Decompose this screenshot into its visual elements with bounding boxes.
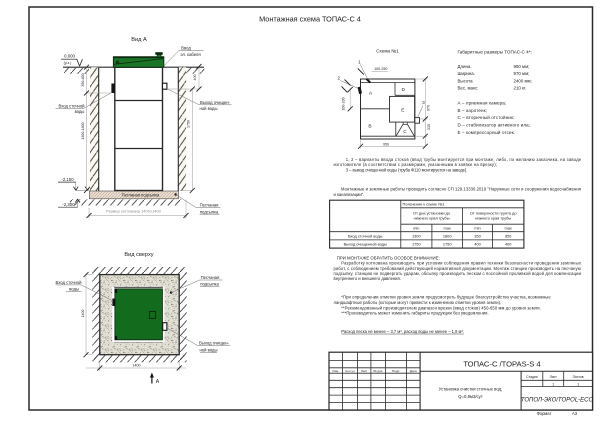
- svg-text:-2,300: -2,300: [62, 202, 75, 207]
- svg-text:Изм.: Изм.: [332, 369, 339, 373]
- svg-text:***Производитель может изменит: ***Производитель может изменить габариты…: [341, 311, 488, 316]
- svg-text:Лист: Лист: [550, 375, 558, 379]
- svg-text:970 мм;: 970 мм;: [514, 71, 530, 76]
- svg-text:210 кг.: 210 кг.: [514, 86, 527, 91]
- svg-text:нижнего края трубы: нижнего края трубы: [414, 216, 450, 221]
- svg-text:Монтажная схема ТОПАС-С 4: Монтажная схема ТОПАС-С 4: [259, 15, 361, 24]
- svg-text:Лист: Лист: [361, 369, 368, 373]
- svg-text:950: 950: [383, 142, 389, 146]
- svg-text:400: 400: [474, 242, 481, 247]
- svg-text:Размер котлована 1400х1400: Размер котлована 1400х1400: [106, 208, 162, 213]
- svg-text:В – аэротенк;: В – аэротенк;: [458, 108, 488, 113]
- svg-text:ной воды: ной воды: [199, 106, 217, 111]
- svg-text:1750: 1750: [443, 242, 452, 247]
- svg-text:1750: 1750: [187, 120, 191, 128]
- svg-text:Вид сверху: Вид сверху: [124, 252, 153, 258]
- svg-text:ТОПАС-С /TOPAS-S 4: ТОПАС-С /TOPAS-S 4: [463, 359, 540, 368]
- svg-text:Е – компрессорный отсек.: Е – компрессорный отсек.: [458, 129, 516, 135]
- svg-text:эл. кабеля: эл. кабеля: [180, 52, 200, 57]
- svg-text:D: D: [401, 87, 405, 93]
- svg-text:1300: 1300: [412, 233, 421, 238]
- svg-text:min: min: [474, 226, 480, 231]
- svg-text:-2,150: -2,150: [61, 177, 74, 182]
- svg-text:0,000: 0,000: [64, 54, 75, 59]
- svg-text:Выход очищен-: Выход очищен-: [200, 100, 230, 105]
- svg-text:950 мм;: 950 мм;: [514, 64, 530, 69]
- svg-text:подсыпка: подсыпка: [200, 281, 219, 286]
- svg-text:и канализации".: и канализации".: [334, 192, 365, 197]
- svg-text:Установка очистки сточных вод,: Установка очистки сточных вод,: [439, 386, 503, 391]
- svg-text:нижнего края трубы: нижнего края трубы: [475, 216, 511, 221]
- svg-text:Формат: Формат: [537, 411, 552, 416]
- svg-text:С: С: [403, 129, 406, 134]
- svg-text:А3: А3: [572, 411, 578, 416]
- svg-text:1750: 1750: [412, 242, 421, 247]
- svg-text:100-250: 100-250: [374, 67, 387, 71]
- svg-text:100-200: 100-200: [342, 97, 346, 110]
- svg-text:Дата: Дата: [410, 369, 417, 373]
- svg-text:Вид А: Вид А: [131, 37, 147, 43]
- svg-text:Выход очищенной воды: Выход очищенной воды: [344, 242, 387, 247]
- svg-text:Выход очищен-: Выход очищен-: [199, 341, 229, 346]
- svg-text:воды: воды: [69, 286, 79, 291]
- svg-text:Q=0,8м3/сут: Q=0,8м3/сут: [458, 394, 483, 399]
- svg-text:Подп.: Подп.: [392, 369, 400, 373]
- svg-text:внутреннего и внешнего давлени: внутреннего и внешнего давления.: [334, 276, 401, 281]
- svg-text:Песчаная: Песчаная: [201, 275, 220, 280]
- svg-text:350-850: 350-850: [81, 73, 85, 86]
- svg-text:Монтажные и земляные работы пр: Монтажные и земляные работы проводить со…: [341, 187, 581, 192]
- svg-text:Вход сточной воды: Вход сточной воды: [348, 233, 383, 238]
- svg-text:1: 1: [552, 382, 554, 386]
- svg-text:Пояснение к схеме №1: Пояснение к схеме №1: [403, 202, 445, 207]
- svg-text:1, 2 – варианты ввода стоков: 1, 2 – варианты ввода стоков (ввод трубы…: [346, 157, 582, 162]
- svg-text:1: 1: [577, 382, 579, 386]
- svg-text:max: max: [444, 226, 451, 231]
- svg-text:В: В: [368, 124, 371, 130]
- svg-text:Листов: Листов: [573, 375, 584, 379]
- svg-text:max: max: [505, 226, 512, 231]
- svg-text:А: А: [156, 379, 160, 385]
- svg-text:(у.з.): (у.з.): [64, 61, 72, 65]
- svg-text:С – вторичный отстойник;: С – вторичный отстойник;: [458, 114, 515, 120]
- svg-text:Вход сточной: Вход сточной: [59, 104, 86, 109]
- svg-text:Вход сточной: Вход сточной: [56, 280, 83, 285]
- svg-text:подсыпка: подсыпка: [200, 209, 219, 214]
- svg-text:№ док.: № док.: [373, 369, 383, 373]
- svg-text:Габаритные размеры ТОПАС-С 4*:: Габаритные размеры ТОПАС-С 4*:: [458, 50, 532, 55]
- svg-text:Расход песка не менее – 3,7 м³: Расход песка не менее – 3,7 м³, расход в…: [341, 329, 464, 334]
- svg-text:изготовителе (в соответствии с: изготовителе (в соответствии с размерами…: [334, 162, 498, 167]
- svg-text:Песчаная подсыпка: Песчаная подсыпка: [122, 192, 160, 197]
- svg-text:ТОПОЛ-ЭКО/TOPOL-ECO: ТОПОЛ-ЭКО/TOPOL-ECO: [521, 397, 594, 403]
- svg-text:1400: 1400: [133, 364, 141, 368]
- svg-text:А – приемная камера;: А – приемная камера;: [458, 101, 507, 106]
- svg-text:2400 мм;: 2400 мм;: [514, 78, 532, 83]
- svg-text:3 – вывод очищенной воды (труб: 3 – вывод очищенной воды (труба Ф110 мон…: [346, 167, 468, 172]
- svg-text:воды: воды: [75, 109, 85, 114]
- svg-text:Высота: Высота: [458, 78, 474, 83]
- svg-text:Песчаная: Песчаная: [200, 203, 219, 208]
- svg-text:Кол.уч: Кол.уч: [345, 369, 355, 373]
- svg-text:315: 315: [427, 124, 431, 130]
- svg-text:ландшафтные работы (которые мо: ландшафтные работы (которые могут привес…: [334, 300, 502, 305]
- svg-text:Ввод: Ввод: [181, 45, 191, 50]
- svg-text:ной воды: ной воды: [199, 348, 217, 353]
- svg-text:Длина.: Длина.: [458, 64, 472, 69]
- svg-text:970: 970: [427, 105, 431, 111]
- svg-text:350: 350: [474, 233, 481, 238]
- svg-text:Ширина.: Ширина.: [458, 71, 475, 76]
- svg-text:400: 400: [193, 75, 197, 81]
- svg-text:Вес, макс:: Вес, макс:: [458, 86, 479, 91]
- svg-text:Е: Е: [401, 107, 404, 113]
- svg-text:1400: 1400: [81, 310, 85, 318]
- svg-text:850: 850: [505, 233, 512, 238]
- svg-text:Стадия: Стадия: [526, 375, 537, 379]
- svg-text:1300-1800: 1300-1800: [81, 122, 85, 139]
- svg-text:min: min: [413, 226, 419, 231]
- svg-text:Схема №1: Схема №1: [376, 49, 399, 54]
- svg-text:D – стабилизатор активного ила: D – стабилизатор активного ила;: [458, 123, 531, 128]
- svg-text:1800: 1800: [443, 233, 452, 238]
- svg-text:400: 400: [505, 242, 512, 247]
